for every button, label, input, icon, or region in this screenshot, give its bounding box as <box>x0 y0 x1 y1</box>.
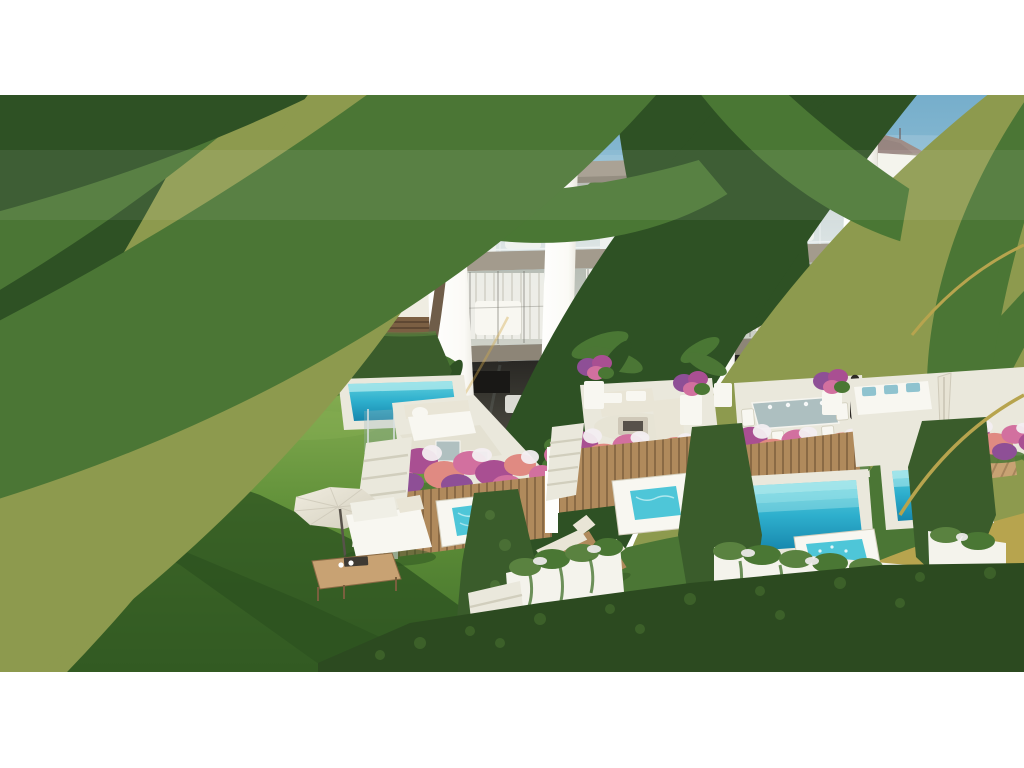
atmospheric-haze <box>0 150 1024 220</box>
listing-photo-page <box>0 0 1024 768</box>
letterbox-bottom <box>0 672 1024 768</box>
wall-tv <box>468 371 510 393</box>
blue-cushion-sofa <box>854 381 932 415</box>
render-scene <box>0 95 1024 672</box>
property-render-photo <box>0 95 1024 672</box>
letterbox-top <box>0 0 1024 95</box>
